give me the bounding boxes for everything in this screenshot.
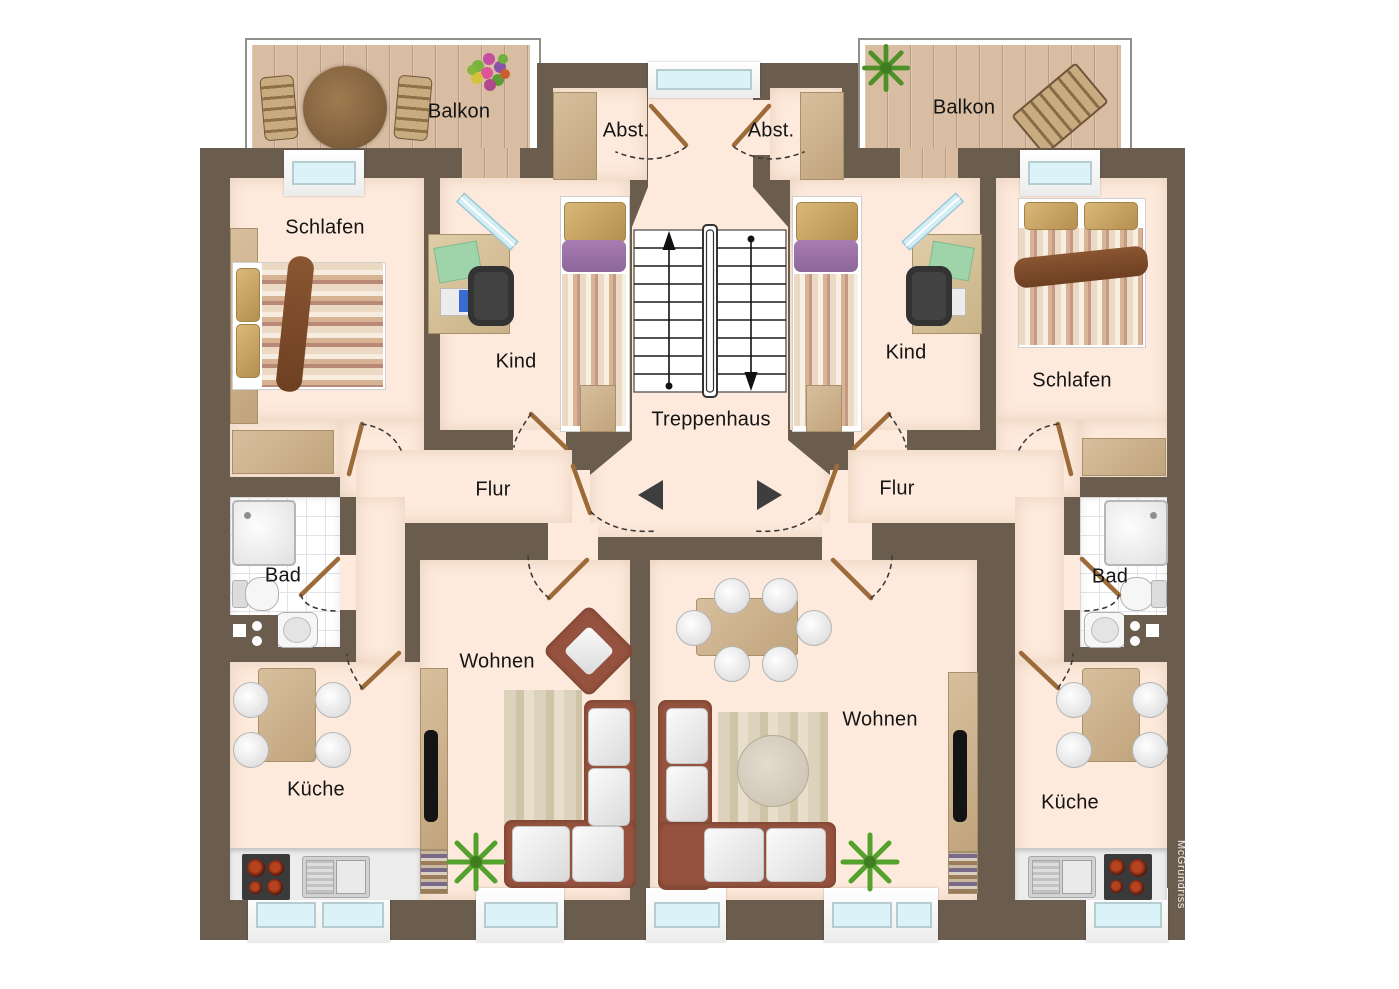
chair [233, 732, 269, 768]
window-glass [656, 69, 752, 90]
wardrobe [553, 92, 597, 180]
room-label-balcony-right: Balkon [933, 97, 995, 120]
room-label-bedroom-right: Schlafen [1032, 370, 1111, 393]
window-glass [654, 902, 720, 928]
room-label-kitchen-left: Küche [287, 779, 345, 802]
bed-pillow [236, 268, 260, 322]
bed-bench [1082, 438, 1166, 476]
burner [247, 859, 265, 877]
chair [762, 578, 798, 614]
burner [1110, 880, 1123, 893]
bed-bench [232, 430, 334, 474]
shaft-circle [1130, 636, 1140, 646]
bed-pillow [1024, 202, 1078, 230]
bed-pillow [564, 202, 626, 242]
chair [714, 578, 750, 614]
room-label-child-right: Kind [886, 342, 927, 365]
bed-blanket [794, 240, 858, 272]
sofa-cushion [572, 826, 624, 882]
shower-drain [244, 512, 251, 519]
chair [1132, 682, 1168, 718]
window-glass [292, 161, 356, 185]
corridor-stub-left [356, 497, 405, 662]
burner [249, 881, 262, 894]
bookshelf [420, 850, 448, 894]
room-label-balcony-left: Balkon [428, 101, 490, 124]
chair [233, 682, 269, 718]
desk-chair [468, 266, 514, 326]
burner [1129, 880, 1144, 895]
burner [268, 860, 284, 876]
balcony-chair [393, 75, 432, 142]
burner [1109, 859, 1125, 875]
opening-balcony-left [462, 148, 520, 178]
opening-living-left [548, 523, 598, 560]
watermark: McGrundriss [1169, 840, 1187, 952]
room-label-bath-left: Bad [265, 565, 301, 588]
tv [424, 730, 438, 822]
bed-pillow [236, 324, 260, 378]
sink-drainer [306, 860, 334, 894]
opening-living-right [822, 523, 872, 560]
room-label-bedroom-left: Schlafen [285, 217, 364, 240]
opening-child-right [854, 430, 907, 450]
room-label-hall-right: Flur [879, 478, 914, 501]
corridor-stub-right [1015, 497, 1064, 662]
window-glass [896, 902, 932, 928]
chair [796, 610, 832, 646]
coffee-table [737, 735, 809, 807]
burner [1129, 859, 1147, 877]
sink-drainer [1032, 860, 1060, 894]
sofa-cushion [666, 708, 708, 764]
burner [267, 879, 283, 895]
sofa-cushion [588, 708, 630, 766]
shower-drain [1150, 512, 1157, 519]
bed-pillow [1084, 202, 1138, 230]
room-label-bath-right: Bad [1092, 566, 1128, 589]
bookshelf [948, 852, 978, 894]
room-label-storage-left: Abst. [603, 120, 650, 143]
opening-bath-left [340, 555, 356, 610]
toilet [1151, 580, 1167, 608]
bed-blanket [562, 240, 626, 272]
room-label-living-right: Wohnen [842, 709, 917, 732]
window-glass [484, 902, 558, 928]
chair [1132, 732, 1168, 768]
washbasin-bowl [283, 617, 311, 643]
shower [1104, 500, 1168, 566]
room-label-hall-left: Flur [475, 479, 510, 502]
sofa-cushion [704, 828, 764, 882]
shower [232, 500, 296, 566]
tv [953, 730, 967, 822]
armchair-cushion [564, 626, 615, 677]
wardrobe [800, 92, 844, 180]
cabinet [806, 385, 842, 432]
shaft-square [1146, 624, 1159, 637]
sofa-cushion [766, 828, 826, 882]
chair [315, 732, 351, 768]
floor-plan: Balkon Balkon Abst. Abst. Schlafen Kind … [0, 0, 1399, 989]
chair [1056, 732, 1092, 768]
sofa-cushion [666, 766, 708, 822]
shaft-circle [252, 636, 262, 646]
sink-basin [336, 860, 366, 894]
cabinet [580, 385, 616, 432]
chair [714, 646, 750, 682]
desk-chair [906, 266, 952, 326]
window-glass [1094, 902, 1162, 928]
washbasin-bowl [1091, 617, 1119, 643]
window-glass [322, 902, 384, 928]
shaft-circle [1130, 621, 1140, 631]
shaft-circle [252, 621, 262, 631]
room-label-living-left: Wohnen [459, 651, 534, 674]
chair [1056, 682, 1092, 718]
window-glass [256, 902, 316, 928]
room-label-child-left: Kind [496, 351, 537, 374]
room-label-kitchen-right: Küche [1041, 792, 1099, 815]
room-label-storage-right: Abst. [748, 120, 795, 143]
room-label-stairwell: Treppenhaus [651, 409, 770, 432]
window-glass [1028, 161, 1092, 185]
sofa-cushion [588, 768, 630, 826]
chair [676, 610, 712, 646]
balcony-table [303, 66, 387, 150]
sofa-cushion [512, 826, 570, 882]
chair [315, 682, 351, 718]
opening-child-left [513, 430, 566, 450]
opening-balcony-right [900, 148, 958, 178]
sink-basin [1062, 860, 1092, 894]
chair [762, 646, 798, 682]
balcony-chair [259, 75, 298, 142]
bed-pillow [796, 202, 858, 242]
shaft-square [233, 624, 246, 637]
window-glass [832, 902, 892, 928]
opening-bath-right [1064, 555, 1080, 610]
